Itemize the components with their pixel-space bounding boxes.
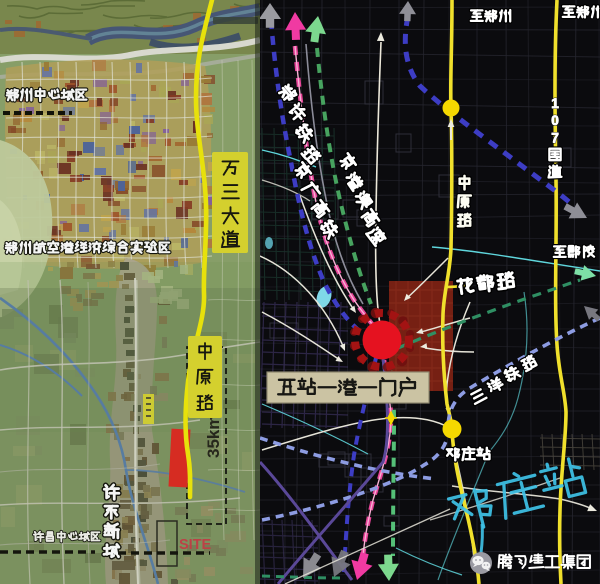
- svg-text:0: 0: [551, 113, 559, 128]
- svg-text:7: 7: [551, 130, 559, 145]
- svg-text:1: 1: [551, 96, 559, 111]
